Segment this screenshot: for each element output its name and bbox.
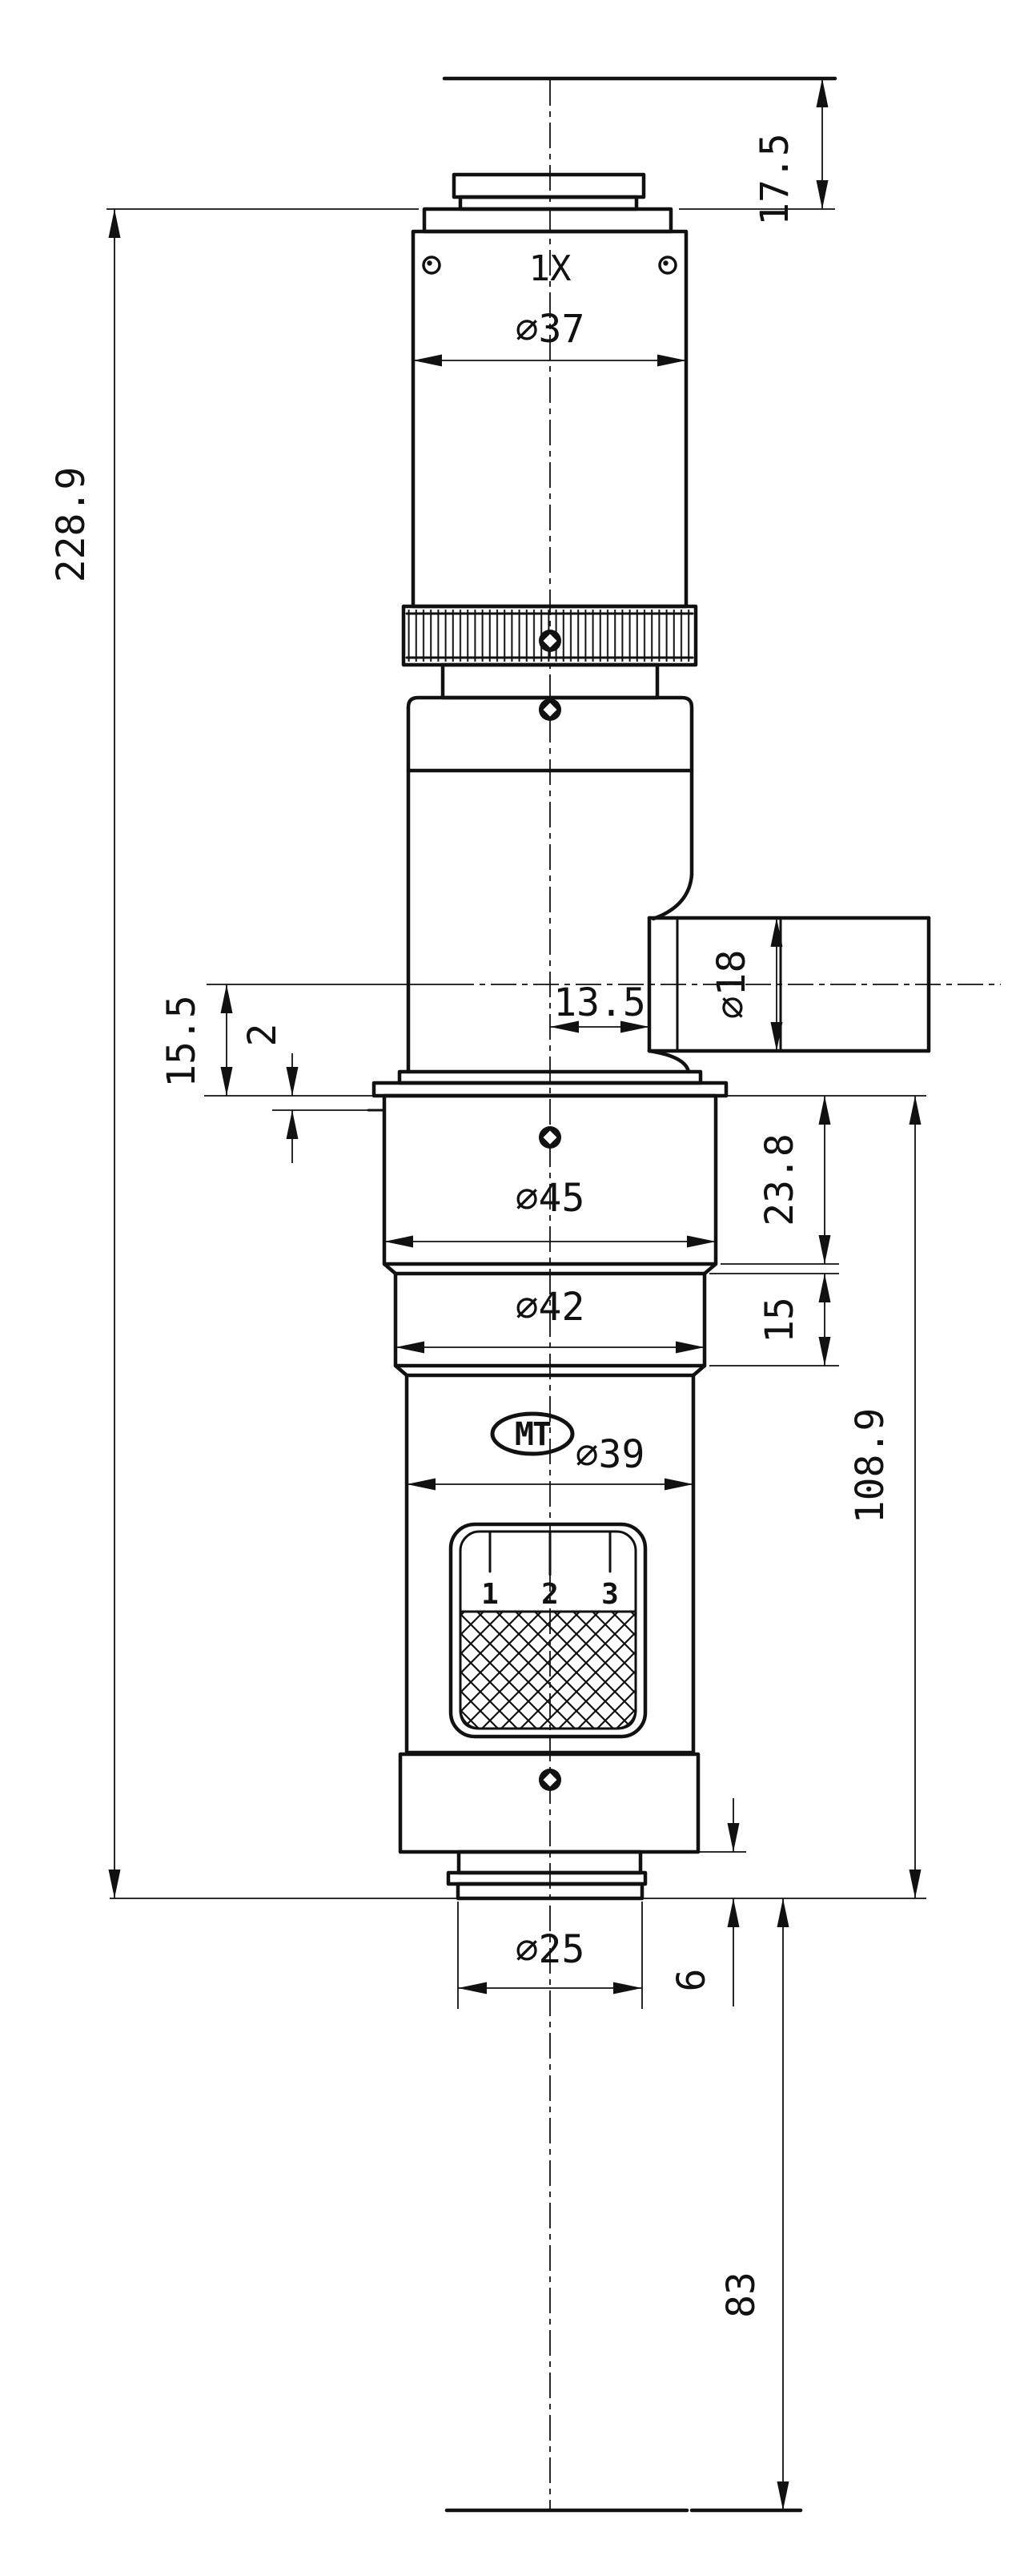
knurled-lock-ring bbox=[404, 606, 696, 665]
dim-flange-length: 23.8 bbox=[721, 1096, 926, 1264]
screw-head-left bbox=[424, 257, 440, 273]
dim-port-diameter: ∅18 bbox=[709, 918, 783, 1051]
c-mount-adapter bbox=[454, 175, 644, 209]
svg-text:108.9: 108.9 bbox=[848, 1408, 893, 1524]
svg-text:6: 6 bbox=[669, 1969, 714, 1992]
zoom-scale-mark-2: 2 bbox=[541, 1578, 559, 1611]
svg-text:2: 2 bbox=[240, 1024, 285, 1047]
adapter-plate bbox=[424, 209, 671, 231]
dim-flange-focal-distance: 17.5 bbox=[679, 78, 835, 226]
svg-text:83: 83 bbox=[719, 2272, 764, 2318]
magnification-label: 1X bbox=[529, 248, 572, 289]
dim-ring-length: 15 bbox=[709, 1274, 839, 1366]
manufacturer-logo: MT bbox=[515, 1416, 551, 1453]
svg-text:∅42: ∅42 bbox=[516, 1285, 585, 1330]
dim-port-offset: 13.5 bbox=[550, 980, 649, 1033]
set-screw-socket-1 bbox=[539, 630, 561, 652]
svg-text:17.5: 17.5 bbox=[753, 133, 797, 226]
screw-head-right bbox=[660, 257, 676, 273]
microscope-lens-dimension-drawing: 17.5 1X ∅37 228.9 13.5 ∅18 15.5 bbox=[0, 0, 1032, 2576]
svg-text:∅37: ∅37 bbox=[516, 307, 585, 352]
zoom-scale-mark-3: 3 bbox=[601, 1578, 619, 1611]
dim-lower-length: 108.9 bbox=[848, 1096, 922, 1898]
zoom-scale-mark-1: 1 bbox=[481, 1578, 499, 1611]
svg-text:13.5: 13.5 bbox=[553, 980, 646, 1025]
zoom-scale-window bbox=[451, 1524, 645, 1737]
technical-drawing-canvas: 17.5 1X ∅37 228.9 13.5 ∅18 15.5 bbox=[0, 0, 1032, 2576]
svg-text:15.5: 15.5 bbox=[159, 995, 204, 1088]
svg-text:228.9: 228.9 bbox=[49, 467, 94, 583]
set-screw-socket-2 bbox=[539, 698, 561, 721]
clamp-ring bbox=[400, 1754, 698, 1852]
svg-text:15: 15 bbox=[757, 1297, 802, 1343]
set-screw-socket-4 bbox=[539, 1769, 561, 1791]
dim-overall-length: 228.9 bbox=[49, 209, 419, 1898]
dim-nose-length: 6 bbox=[669, 1798, 746, 2006]
grip-crosshatch bbox=[460, 1612, 636, 1729]
illumination-port bbox=[649, 875, 929, 1072]
svg-text:∅39: ∅39 bbox=[576, 1432, 645, 1477]
dim-working-distance: 83 bbox=[719, 1898, 789, 2510]
dim-flange-step: 2 bbox=[240, 1024, 383, 1163]
svg-text:∅25: ∅25 bbox=[516, 1927, 585, 1972]
svg-text:∅18: ∅18 bbox=[709, 950, 754, 1020]
svg-text:∅45: ∅45 bbox=[516, 1176, 585, 1221]
set-screw-socket-3 bbox=[539, 1126, 561, 1149]
svg-text:23.8: 23.8 bbox=[757, 1133, 802, 1226]
